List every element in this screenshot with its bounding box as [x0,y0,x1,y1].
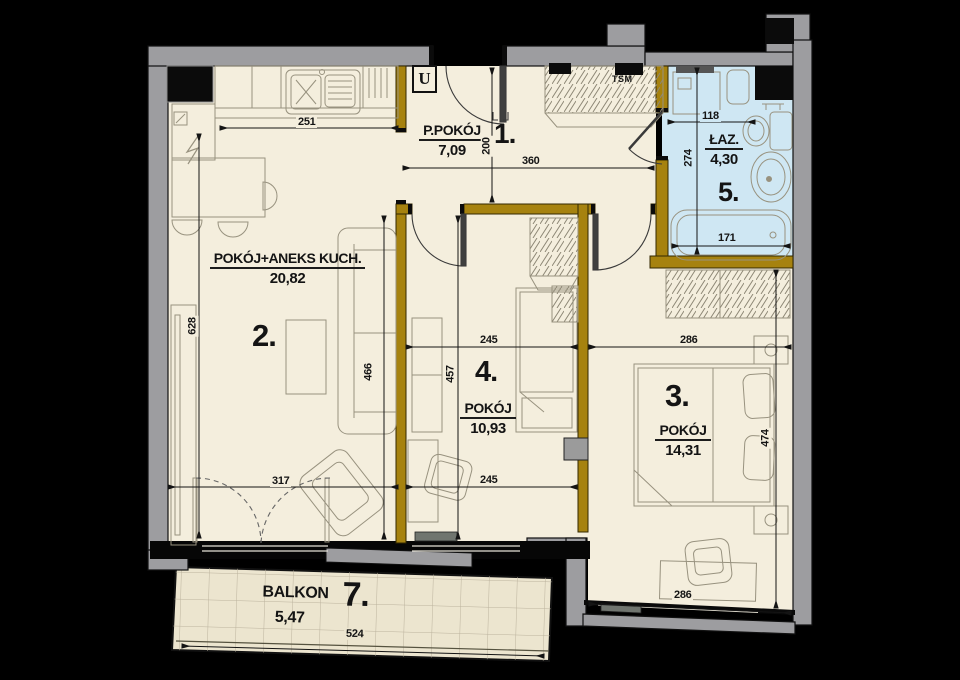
room-bathroom-name: ŁAZ. [705,131,743,150]
floor-plan: U TSM P.POKÓJ 7,09 1. POKÓJ+ANEKS KUCH. … [0,0,960,680]
dim-hall-depth: 200 [481,135,493,156]
dim-bath-top-width: 118 [700,110,721,122]
dim-kitchen-width: 251 [296,116,317,128]
utility-label: U [412,65,437,93]
room-bedroom-large-area: 14,31 [650,442,716,459]
entrance-door-leaf [500,66,506,122]
dim-room4-bottom-width: 245 [478,474,499,486]
room-bathroom-label: ŁAZ. 4,30 [700,131,748,168]
room-bedroom-large-label: POKÓJ 14,31 [650,422,716,459]
wardrobe-tsm-label: TSM [612,74,633,84]
dim-bath-height: 274 [683,147,695,168]
room-hall-label: P.POKÓJ 7,09 [416,122,488,159]
bath-sink [751,152,791,202]
dim-hall-width: 360 [520,155,541,167]
dim-room3-bottom-width: 286 [672,589,693,601]
room-hall-area: 7,09 [416,142,488,159]
room-balcony-area: 5,47 [275,609,305,628]
radiator-room4 [415,532,457,541]
dim-balcony-width: 524 [344,628,366,641]
shaft-left [167,66,213,102]
room-balcony-number: 7. [342,575,369,615]
room-bathroom-number: 5. [718,177,739,208]
dim-bathtub-width: 171 [716,232,737,244]
room4-door-leaf [461,214,466,266]
wardrobe-room3 [666,270,790,318]
room-balcony-name: BALKON [262,583,328,603]
dim-living-height: 628 [187,315,199,336]
room-bedroom-small-label: POKÓJ 10,93 [456,400,520,437]
room-living-area: 20,82 [200,270,375,287]
dim-room3-height: 474 [760,427,772,448]
heater-room4 [564,438,588,460]
room-bathroom-area: 4,30 [700,151,748,168]
dim-living-right-height: 466 [363,361,375,382]
room-hall-number: 1. [494,118,515,150]
room-bedroom-large-number: 3. [665,378,689,414]
room-bedroom-large-name: POKÓJ [655,422,710,441]
room-bedroom-small-number: 4. [475,356,497,389]
dim-room4-height: 457 [445,363,457,384]
room-hall-name: P.POKÓJ [419,122,485,141]
top-right-shaft [766,18,794,44]
dim-room4-top-width: 245 [478,334,499,346]
room-living-name: POKÓJ+ANEKS KUCH. [210,250,366,269]
room-living-number: 2. [252,318,276,354]
balcony-labels: BALKON 5,47 7. [169,565,561,665]
dim-living-bottom-width: 317 [270,475,291,487]
room3-door-leaf [593,214,598,270]
room-bedroom-small-area: 10,93 [456,420,520,437]
room-living-label: POKÓJ+ANEKS KUCH. 20,82 [200,250,375,287]
room-bedroom-small-name: POKÓJ [460,400,515,419]
dim-room3-top-width: 286 [678,334,699,346]
